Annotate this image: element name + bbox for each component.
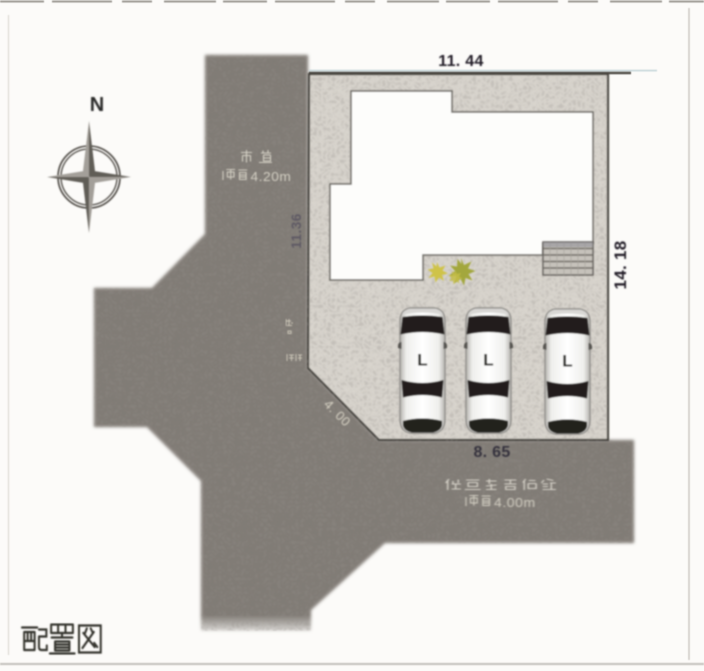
svg-text:8. 65: 8. 65 <box>473 444 510 461</box>
svg-text:11.36: 11.36 <box>289 213 304 249</box>
svg-text:4.20m: 4.20m <box>251 170 292 184</box>
svg-text:N: N <box>90 94 104 116</box>
svg-text:14. 18: 14. 18 <box>611 240 630 289</box>
svg-text:4.00m: 4.00m <box>494 496 536 510</box>
svg-text:11. 44: 11. 44 <box>438 53 483 70</box>
